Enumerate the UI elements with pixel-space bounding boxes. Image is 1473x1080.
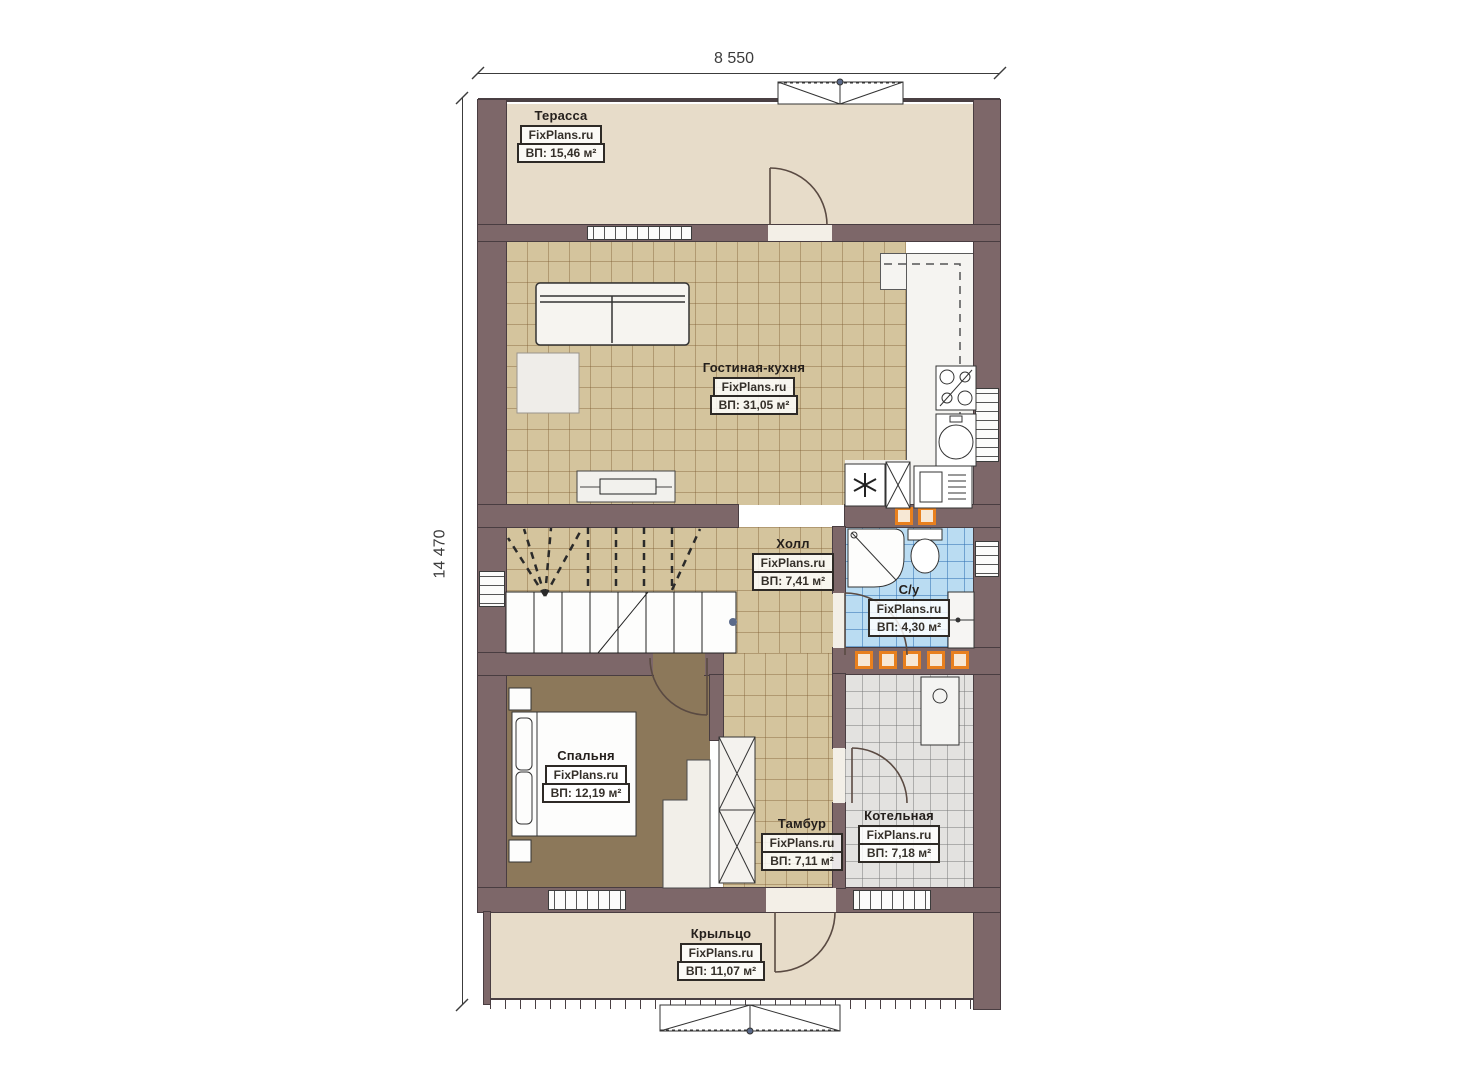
watermark: FixPlans.ru [545, 765, 628, 785]
label-living-kitchen: Гостиная-кухня FixPlans.ru ВП: 31,05 м² [700, 360, 808, 415]
label-bathroom: С/у FixPlans.ru ВП: 4,30 м² [866, 582, 952, 637]
terrace-top-edge [478, 98, 1000, 102]
vent-block [918, 507, 936, 525]
porch-steps-marker [660, 1005, 840, 1034]
wall-bedroom-top-a [478, 653, 653, 675]
vent-block [951, 651, 969, 669]
floor-plan: 8 550 14 470 Терасса FixPlans.ru ВП: 15,… [0, 0, 1473, 1080]
dimension-height: 14 470 [431, 530, 449, 579]
window-boiler-bottom [853, 890, 931, 910]
watermark: FixPlans.ru [713, 377, 796, 397]
dimension-width: 8 550 [714, 50, 754, 68]
room-name: Тамбур [778, 816, 826, 831]
room-name: Спальня [557, 748, 615, 763]
wall-terrace-right [974, 100, 1000, 232]
room-name: Крыльцо [691, 926, 752, 941]
porch-edge [490, 998, 974, 1009]
room-name: Гостиная-кухня [703, 360, 805, 375]
room-name: Терасса [535, 108, 588, 123]
window-living-top [587, 226, 692, 240]
watermark: FixPlans.ru [752, 553, 835, 573]
room-area: ВП: 31,05 м² [710, 395, 799, 415]
watermark: FixPlans.ru [858, 825, 941, 845]
kitchen-counter-notch [880, 253, 907, 290]
wall-bedroom-right [710, 675, 723, 740]
wall-terrace-left [478, 100, 506, 232]
window-kitchen-right [975, 388, 999, 462]
watermark: FixPlans.ru [520, 125, 603, 145]
watermark: FixPlans.ru [761, 833, 844, 853]
dimension-line-top [478, 73, 1000, 74]
room-area: ВП: 15,46 м² [517, 143, 606, 163]
label-bedroom: Спальня FixPlans.ru ВП: 12,19 м² [540, 748, 632, 803]
door-opening-bath [833, 593, 845, 648]
room-area: ВП: 11,07 м² [677, 961, 765, 981]
vent-block [895, 507, 913, 525]
window-bath-right [975, 541, 999, 577]
door-opening-bedroom [653, 653, 705, 675]
wall-tambour-boiler-a [833, 674, 845, 748]
room-name: Холл [776, 536, 809, 551]
watermark: FixPlans.ru [680, 943, 763, 963]
label-terrace: Терасса FixPlans.ru ВП: 15,46 м² [505, 108, 617, 163]
wall-house-top [478, 225, 1000, 241]
door-opening-terrace [768, 225, 832, 241]
dimension-line-left [462, 98, 463, 1005]
room-area: ВП: 7,41 м² [752, 571, 834, 591]
room-name: Котельная [864, 808, 934, 823]
wall-bath-left [833, 527, 845, 593]
vent-block [927, 651, 945, 669]
vent-block [903, 651, 921, 669]
room-area: ВП: 7,18 м² [858, 843, 940, 863]
wall-house-left [478, 225, 506, 912]
label-hall: Холл FixPlans.ru ВП: 7,41 м² [752, 536, 834, 591]
watermark: FixPlans.ru [868, 599, 951, 619]
appliance-row [845, 460, 974, 505]
room-area: ВП: 4,30 м² [868, 617, 950, 637]
wall-living-hall [478, 505, 738, 527]
label-boiler: Котельная FixPlans.ru ВП: 7,18 м² [854, 808, 944, 863]
window-bedroom-bottom [548, 890, 626, 910]
vent-block [855, 651, 873, 669]
label-tambour: Тамбур FixPlans.ru ВП: 7,11 м² [758, 816, 846, 871]
window-hall-left [479, 571, 505, 607]
vent-block [879, 651, 897, 669]
door-opening-entrance [766, 888, 836, 912]
wall-bedroom-top-b [705, 653, 723, 675]
room-name: С/у [899, 582, 920, 597]
wall-porch-left-edge [484, 912, 490, 1004]
room-area: ВП: 12,19 м² [542, 783, 631, 803]
label-porch: Крыльцо FixPlans.ru ВП: 11,07 м² [672, 926, 770, 981]
door-opening-boiler [833, 748, 845, 803]
room-area: ВП: 7,11 м² [761, 851, 843, 871]
